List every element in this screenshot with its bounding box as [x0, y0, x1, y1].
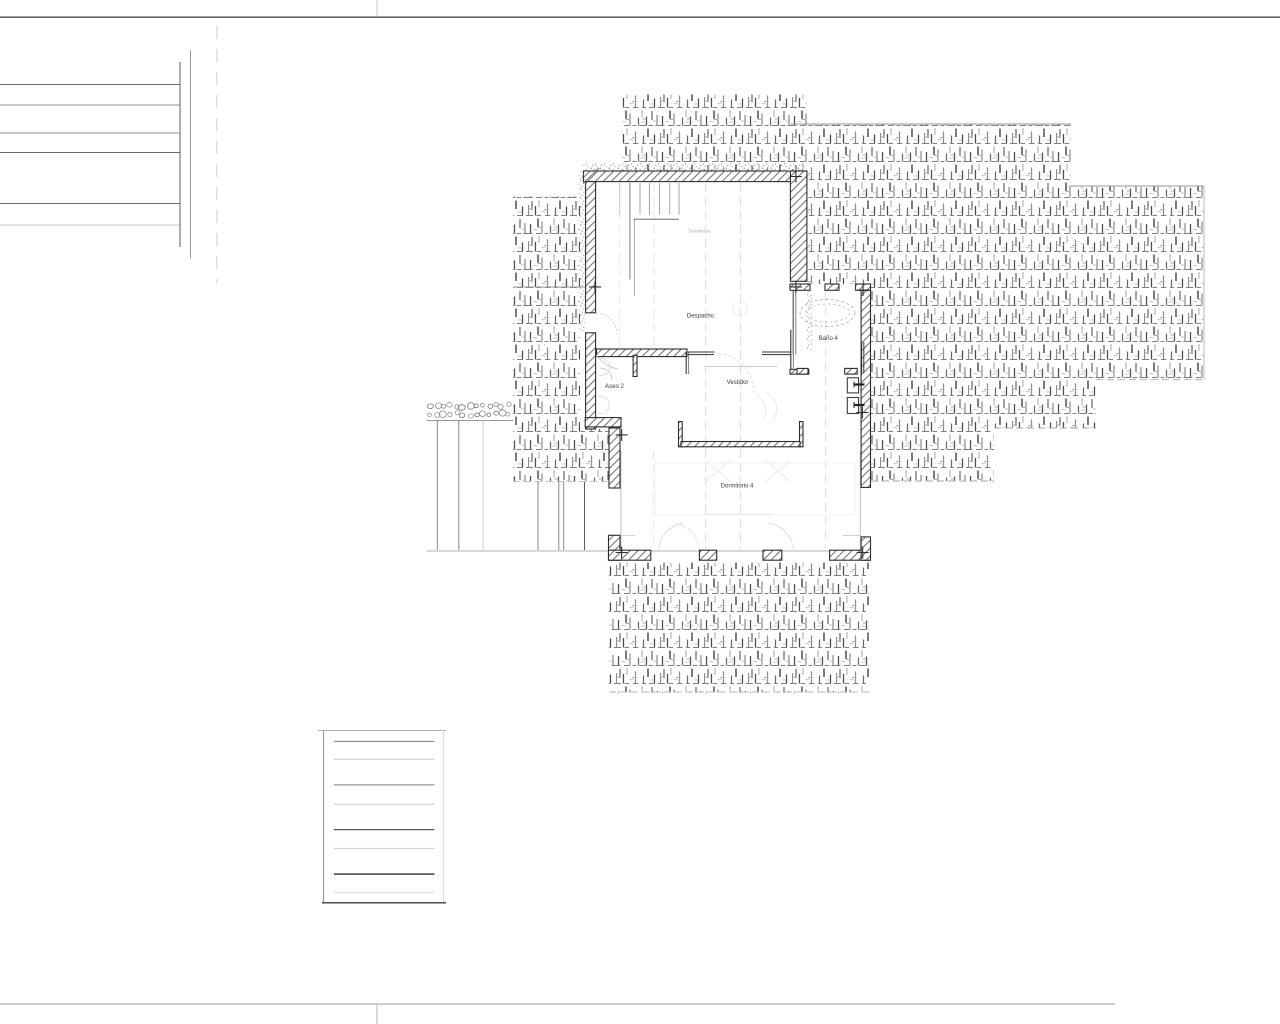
svg-text:Despacho: Despacho	[687, 314, 715, 320]
svg-text:Aseo 2: Aseo 2	[605, 384, 624, 390]
svg-text:Dormitorio: Dormitorio	[688, 229, 710, 235]
svg-text:Vestidor: Vestidor	[727, 380, 749, 386]
svg-text:Dormitorio 4: Dormitorio 4	[721, 484, 754, 490]
svg-text:Baño 4: Baño 4	[819, 336, 839, 342]
